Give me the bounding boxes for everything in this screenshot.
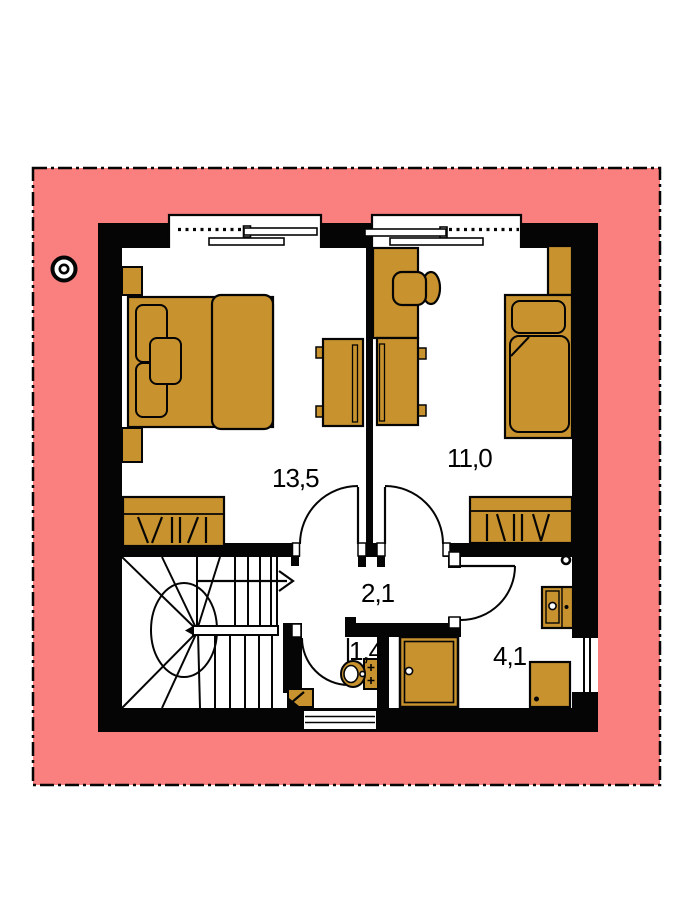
- chimney-icon: [53, 258, 76, 281]
- stair-rail: [185, 626, 278, 635]
- room-label-bathroom: 4,1: [493, 641, 527, 671]
- floor-plan-drawing: 13,5 11,0 2,1 1,4 4,1: [0, 0, 696, 900]
- room-label-hall: 2,1: [361, 578, 395, 608]
- room-label-wc: 1,4: [349, 636, 383, 666]
- side-table-right: [377, 338, 426, 425]
- room-label-bedroom-left: 13,5: [272, 463, 319, 493]
- closet-left: [123, 497, 224, 546]
- nightstand-bottom: [122, 428, 142, 462]
- shower-unit: [400, 637, 458, 707]
- washbasin-cabinet: [542, 587, 573, 628]
- wardrobe-right: [470, 497, 572, 543]
- bathroom-window: [572, 637, 598, 693]
- double-bed: [128, 295, 273, 429]
- drain-ring-icon: [562, 556, 570, 564]
- room-label-bedroom-right: 11,0: [447, 443, 492, 473]
- bottom-window: [303, 710, 377, 730]
- floor-plan-page: 13,5 11,0 2,1 1,4 4,1: [0, 0, 696, 900]
- single-bed: [505, 295, 572, 438]
- desk-chair: [393, 272, 440, 305]
- duvet: [510, 336, 569, 432]
- cabinet-knob: [534, 697, 539, 702]
- pillow: [150, 338, 181, 384]
- nightstand-top: [122, 267, 142, 295]
- washbasin-small: [288, 689, 313, 707]
- side-table-left: [316, 339, 363, 426]
- pillow: [512, 301, 565, 333]
- corner-shelf: [548, 246, 572, 295]
